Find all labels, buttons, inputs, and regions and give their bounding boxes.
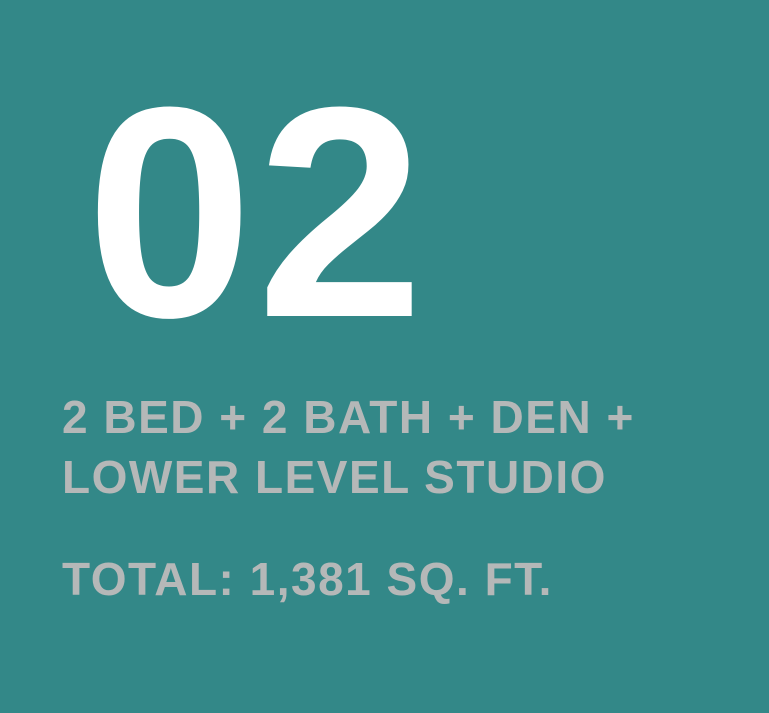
unit-total-area: TOTAL: 1,381 SQ. FT.: [62, 549, 553, 609]
unit-card: 02 2 BED + 2 BATH + DEN + LOWER LEVEL ST…: [0, 0, 769, 713]
unit-description-line-2: LOWER LEVEL STUDIO: [62, 447, 635, 507]
unit-description-line-1: 2 BED + 2 BATH + DEN +: [62, 387, 635, 447]
unit-description: 2 BED + 2 BATH + DEN + LOWER LEVEL STUDI…: [62, 387, 635, 507]
unit-number: 02: [86, 62, 428, 362]
